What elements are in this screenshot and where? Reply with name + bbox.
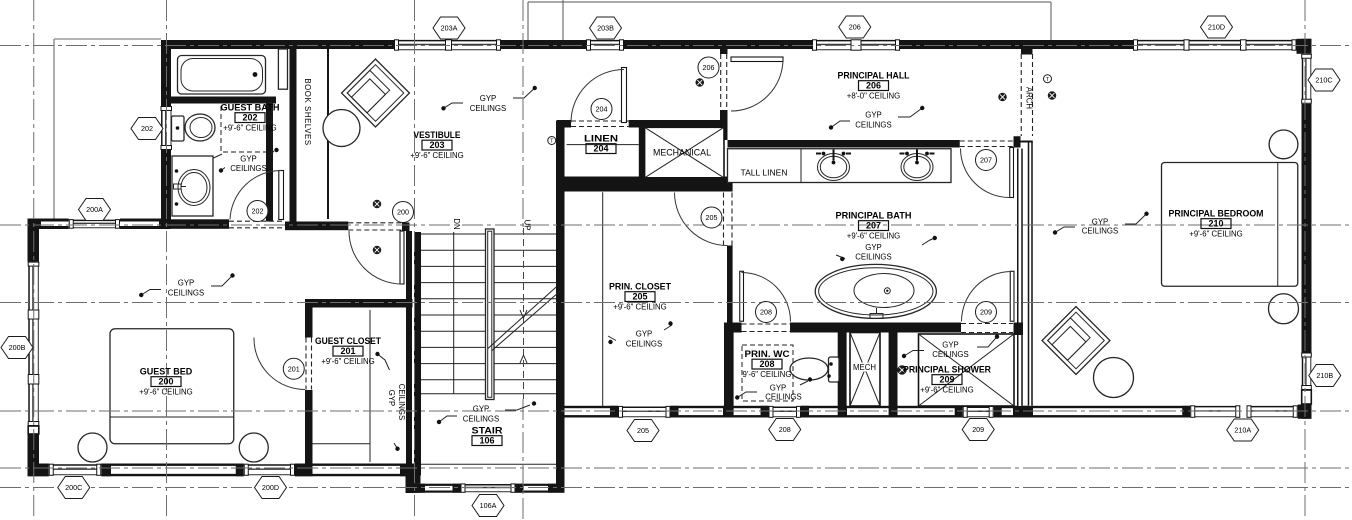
svg-text:GYP: GYP bbox=[770, 384, 786, 393]
svg-text:204: 204 bbox=[596, 105, 608, 114]
svg-text:+9'-6" CEILING: +9'-6" CEILING bbox=[410, 151, 463, 160]
svg-text:CEILINGS: CEILINGS bbox=[932, 350, 968, 359]
svg-text:207: 207 bbox=[866, 221, 881, 231]
svg-text:+9'-6" CEILING: +9'-6" CEILING bbox=[139, 387, 192, 396]
svg-text:203A: 203A bbox=[441, 24, 458, 33]
svg-text:ARCH: ARCH bbox=[1025, 87, 1034, 109]
svg-text:CEILINGS: CEILINGS bbox=[855, 253, 891, 262]
svg-text:203: 203 bbox=[429, 140, 444, 150]
svg-text:106: 106 bbox=[479, 436, 494, 446]
svg-text:202: 202 bbox=[252, 207, 264, 216]
svg-text:106A: 106A bbox=[480, 501, 497, 510]
svg-text:210D: 210D bbox=[1208, 23, 1225, 32]
svg-text:210A: 210A bbox=[1234, 426, 1251, 435]
svg-text:DN: DN bbox=[452, 218, 461, 229]
svg-text:VESTIBULE: VESTIBULE bbox=[414, 130, 461, 140]
svg-text:CEILINGS: CEILINGS bbox=[626, 340, 662, 349]
svg-text:208: 208 bbox=[759, 359, 774, 369]
svg-text:203B: 203B bbox=[597, 24, 614, 33]
svg-text:GYP: GYP bbox=[942, 341, 958, 350]
svg-text:CEILINGS: CEILINGS bbox=[855, 121, 891, 130]
svg-text:GYP: GYP bbox=[1092, 218, 1108, 227]
svg-text:CEILINGS: CEILINGS bbox=[1082, 227, 1118, 236]
svg-text:202: 202 bbox=[141, 124, 153, 133]
svg-text:205: 205 bbox=[706, 213, 718, 222]
svg-text:GYP: GYP bbox=[865, 243, 881, 252]
svg-text:PRINCIPAL BEDROOM: PRINCIPAL BEDROOM bbox=[1169, 209, 1264, 219]
svg-text:200: 200 bbox=[158, 377, 173, 387]
svg-text:206: 206 bbox=[866, 81, 881, 91]
svg-text:PRIN. WC: PRIN. WC bbox=[745, 349, 791, 359]
svg-text:+9'-6" CEILING: +9'-6" CEILING bbox=[223, 123, 276, 132]
svg-text:TALL LINEN: TALL LINEN bbox=[741, 169, 788, 178]
svg-text:CEILINGS: CEILINGS bbox=[463, 415, 499, 424]
svg-text:GUEST BATH: GUEST BATH bbox=[221, 103, 280, 113]
svg-text:200A: 200A bbox=[86, 205, 103, 214]
svg-text:208: 208 bbox=[760, 308, 772, 317]
svg-text:210: 210 bbox=[1208, 219, 1223, 229]
svg-text:206: 206 bbox=[849, 23, 861, 32]
svg-text:CEILINGS: CEILINGS bbox=[765, 393, 801, 402]
svg-text:CEILINGS: CEILINGS bbox=[230, 164, 266, 173]
svg-text:+9'-6" CEILING: +9'-6" CEILING bbox=[613, 302, 666, 311]
svg-text:+9'-6" CEILING: +9'-6" CEILING bbox=[1189, 229, 1242, 238]
svg-text:210B: 210B bbox=[1316, 371, 1333, 380]
svg-text:+9'-6" CEILING: +9'-6" CEILING bbox=[321, 357, 374, 366]
svg-text:PRIN. CLOSET: PRIN. CLOSET bbox=[609, 282, 671, 292]
svg-text:+9'-6" CEILING: +9'-6" CEILING bbox=[920, 385, 973, 394]
svg-text:+9'-6" CEILING: +9'-6" CEILING bbox=[847, 231, 900, 240]
svg-text:202: 202 bbox=[242, 113, 257, 123]
svg-text:200: 200 bbox=[397, 208, 409, 217]
svg-text:CEILINGS: CEILINGS bbox=[470, 104, 506, 113]
svg-text:GUEST CLOSET: GUEST CLOSET bbox=[315, 336, 381, 346]
svg-text:200C: 200C bbox=[65, 483, 82, 492]
svg-text:GYP: GYP bbox=[473, 405, 489, 414]
svg-text:PRINCIPAL HALL: PRINCIPAL HALL bbox=[838, 71, 910, 81]
svg-text:MECHANICAL: MECHANICAL bbox=[653, 148, 711, 158]
svg-text:PRINCIPAL SHOWER: PRINCIPAL SHOWER bbox=[903, 365, 991, 375]
svg-text:PRINCIPAL BATH: PRINCIPAL BATH bbox=[836, 211, 912, 221]
svg-text:CEILINGS: CEILINGS bbox=[168, 289, 204, 298]
svg-text:200D: 200D bbox=[262, 483, 279, 492]
svg-text:9'-6" CEILING: 9'-6" CEILING bbox=[743, 370, 792, 379]
svg-text:201: 201 bbox=[288, 364, 300, 373]
svg-text:209: 209 bbox=[972, 425, 984, 434]
svg-text:209: 209 bbox=[980, 308, 992, 317]
svg-text:GUEST BED: GUEST BED bbox=[140, 367, 193, 377]
svg-text:GYP: GYP bbox=[480, 94, 496, 103]
svg-text:209: 209 bbox=[939, 375, 954, 385]
svg-text:206: 206 bbox=[703, 63, 715, 72]
svg-text:GYP: GYP bbox=[387, 390, 396, 406]
svg-text:LINEN: LINEN bbox=[584, 134, 618, 144]
svg-text:GYP: GYP bbox=[178, 279, 194, 288]
svg-text:CEILINGS: CEILINGS bbox=[397, 384, 406, 420]
svg-text:BOOK SHELVES: BOOK SHELVES bbox=[303, 78, 312, 145]
svg-text:207: 207 bbox=[980, 156, 992, 165]
svg-text:GYP: GYP bbox=[865, 111, 881, 120]
svg-text:205: 205 bbox=[632, 292, 647, 302]
svg-text:200B: 200B bbox=[9, 343, 26, 352]
svg-text:205: 205 bbox=[637, 426, 649, 435]
svg-text:MECH: MECH bbox=[853, 363, 876, 372]
svg-text:201: 201 bbox=[340, 346, 355, 356]
svg-text:GYP: GYP bbox=[240, 155, 256, 164]
svg-text:+8'-0" CEILING: +8'-0" CEILING bbox=[847, 91, 900, 100]
svg-text:210C: 210C bbox=[1315, 76, 1332, 85]
svg-text:208: 208 bbox=[779, 425, 791, 434]
svg-text:204: 204 bbox=[593, 144, 608, 154]
svg-text:GYP: GYP bbox=[636, 330, 652, 339]
svg-text:STAIR: STAIR bbox=[472, 426, 504, 436]
